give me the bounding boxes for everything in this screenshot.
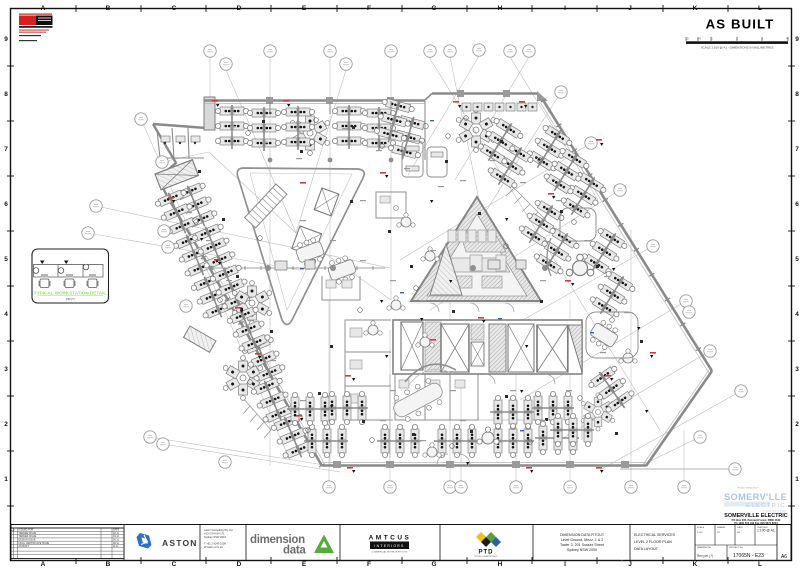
svg-text:E: E	[302, 5, 307, 12]
svg-text:Rev per (?): Rev per (?)	[697, 554, 713, 558]
svg-text:Ph 1300 513 163 Fax (02) 967: Ph 1300 513 163 Fax (02) 9671 6234	[734, 521, 778, 525]
svg-text:I: I	[564, 561, 566, 568]
svg-text:TYPICAL WORKSTATION DETAIL: TYPICAL WORKSTATION DETAIL	[34, 291, 107, 296]
svg-text:8: 8	[795, 91, 799, 98]
svg-text:J: J	[628, 5, 632, 12]
svg-text:AS BUILT: AS BUILT	[19, 545, 30, 548]
svg-text:DATE: DATE	[737, 526, 743, 529]
svg-text:J: J	[628, 561, 632, 568]
svg-text:AS BUILT: AS BUILT	[706, 17, 775, 32]
svg-text:2: 2	[795, 421, 799, 428]
svg-text:5: 5	[4, 256, 8, 263]
svg-text:1: 1	[795, 476, 799, 483]
svg-text:I: I	[564, 5, 566, 12]
svg-text:PTD: PTD	[479, 550, 494, 556]
svg-text:3: 3	[795, 366, 799, 373]
svg-text:AMTCUS: AMTCUS	[369, 535, 412, 542]
svg-text:E: E	[302, 561, 307, 568]
svg-text:K: K	[693, 5, 698, 12]
svg-text:7: 7	[4, 146, 8, 153]
svg-text:Sydney NSW 2001: Sydney NSW 2001	[204, 535, 226, 539]
svg-text:SCALE: SCALE	[697, 526, 705, 529]
svg-text:4: 4	[4, 311, 8, 318]
svg-text:C: C	[172, 561, 177, 568]
svg-text:G: G	[431, 561, 436, 568]
svg-text:Sydney NSW 2000: Sydney NSW 2000	[567, 548, 597, 552]
svg-text:DATA LAYOUT: DATA LAYOUT	[634, 547, 659, 551]
svg-text:data: data	[283, 545, 306, 557]
svg-text:ELECTRIC: ELECTRIC	[746, 503, 786, 509]
svg-text:2: 2	[4, 421, 8, 428]
svg-text:4: 4	[795, 311, 799, 318]
svg-text:6: 6	[4, 201, 8, 208]
svg-text:ELECTRICAL SERVICES: ELECTRICAL SERVICES	[634, 533, 676, 537]
svg-text:7: 7	[795, 146, 799, 153]
svg-text:9: 9	[4, 36, 8, 43]
svg-text:D: D	[237, 561, 242, 568]
svg-text:DRAWING No.: DRAWING No.	[697, 546, 712, 549]
svg-text:K: K	[693, 561, 698, 568]
svg-text:5: 5	[795, 256, 799, 263]
svg-text:17065N - E23: 17065N - E23	[733, 553, 764, 559]
svg-text:L: L	[758, 5, 762, 12]
svg-text:H: H	[498, 5, 503, 12]
svg-text:ASTON: ASTON	[162, 538, 198, 548]
svg-text:D: D	[237, 5, 242, 12]
svg-text:1:100: 1:100	[697, 532, 703, 534]
svg-text:6: 6	[795, 201, 799, 208]
svg-text:PROUDLY INSTALLED BY: PROUDLY INSTALLED BY	[737, 487, 759, 490]
svg-text:A: A	[41, 5, 46, 12]
svg-text:9: 9	[795, 36, 799, 43]
svg-text:Tower 3, 201 Sussex Street: Tower 3, 201 Sussex Street	[560, 543, 604, 547]
svg-text:1: 1	[4, 476, 8, 483]
svg-text:1:100 @ A1: 1:100 @ A1	[757, 529, 775, 533]
svg-text:5 0: 5 0	[697, 37, 701, 41]
svg-text:F: F	[367, 561, 371, 568]
svg-text:L: L	[758, 561, 762, 568]
svg-text:F: F	[367, 5, 371, 12]
svg-text:W aston.com.au: W aston.com.au	[204, 545, 223, 549]
svg-text:B: B	[106, 5, 111, 12]
svg-text:B: B	[106, 561, 111, 568]
svg-text:INTERIORS: INTERIORS	[374, 544, 404, 548]
svg-text:ACN 074 614 171: ACN 074 614 171	[204, 531, 225, 535]
svg-text:Level Ground, Mezz, 1 & 2: Level Ground, Mezz, 1 & 2	[561, 538, 604, 542]
svg-text:3: 3	[4, 366, 8, 373]
svg-text:C: C	[172, 5, 177, 12]
svg-text:A6: A6	[781, 554, 787, 560]
svg-text:SOMERV'LLE: SOMERV'LLE	[724, 492, 787, 502]
svg-text:LEVEL 2 FLOOR PLAN: LEVEL 2 FLOOR PLAN	[634, 540, 672, 544]
svg-text:SCALE 1:100 @ A1 - DIMENSIONS: SCALE 1:100 @ A1 - DIMENSIONS IN MILLIME…	[701, 46, 774, 50]
svg-text:A: A	[41, 561, 46, 568]
svg-text:8: 8	[4, 91, 8, 98]
svg-text:DV: DV	[717, 532, 721, 534]
svg-text:JM: JM	[737, 532, 740, 534]
svg-text:T +61 2 9249 5100: T +61 2 9249 5100	[204, 542, 226, 546]
svg-text:Aston Consulting Pty Ltd: Aston Consulting Pty Ltd	[204, 528, 233, 532]
svg-text:DRAWN: DRAWN	[717, 526, 726, 529]
svg-text:DIMENSION DATA FITOUT: DIMENSION DATA FITOUT	[560, 533, 605, 537]
svg-text:H: H	[498, 561, 503, 568]
svg-text:PROJECT No.: PROJECT No.	[729, 547, 744, 549]
svg-text:1:50 (?): 1:50 (?)	[66, 297, 75, 301]
svg-text:11.11: 11.11	[113, 545, 119, 548]
svg-text:G: G	[431, 5, 436, 12]
svg-text:PROJECT TEAM DELIVERY: PROJECT TEAM DELIVERY	[474, 555, 498, 558]
svg-text:COMMERCIAL INTERIOR FITOUTS: COMMERCIAL INTERIOR FITOUTS	[372, 551, 408, 554]
